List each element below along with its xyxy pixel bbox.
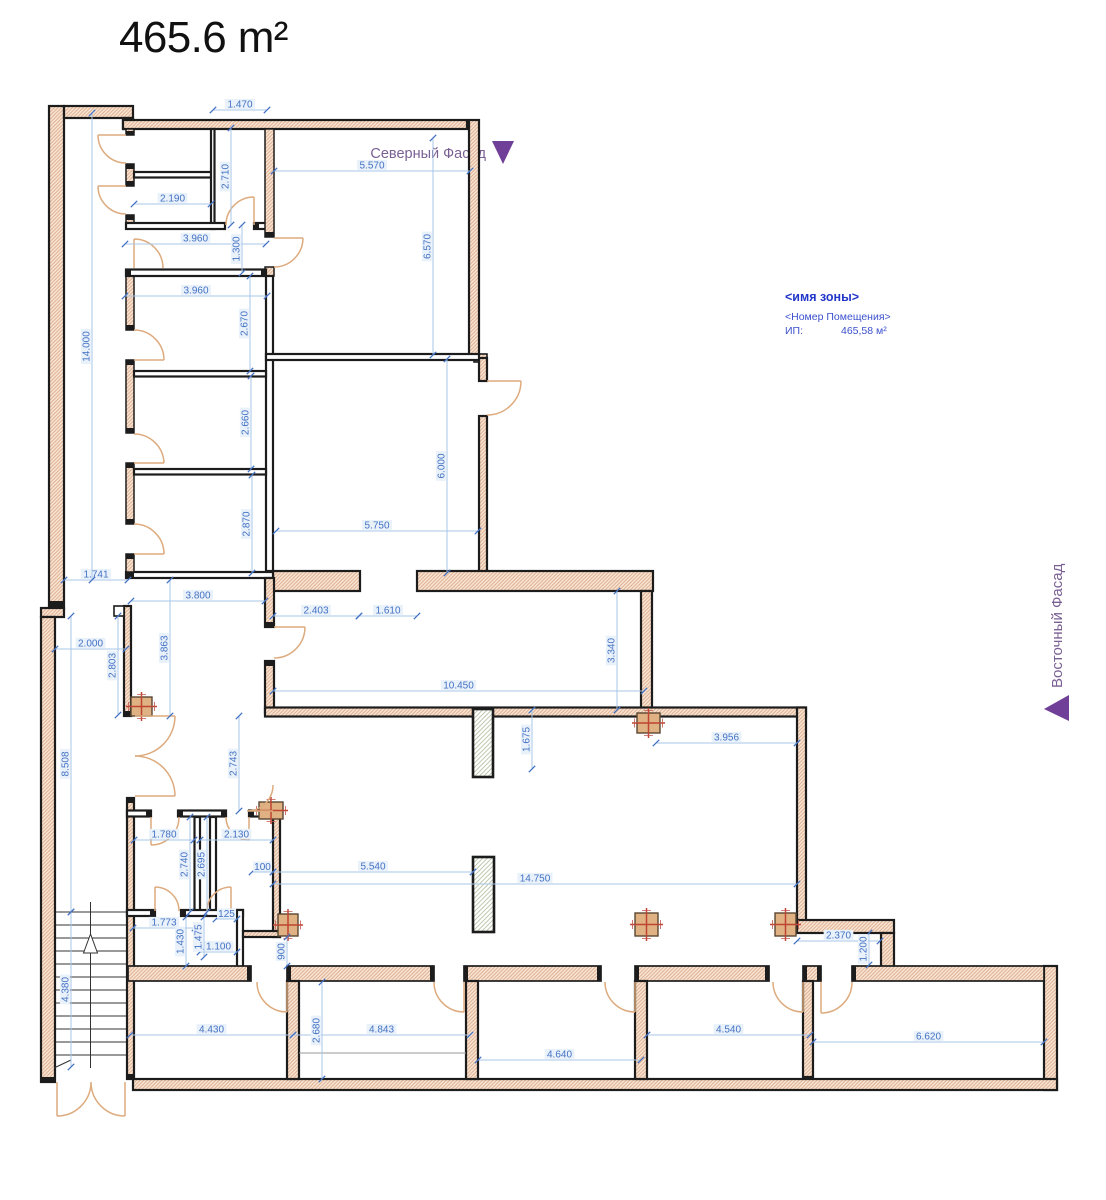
svg-text:6.570: 6.570 bbox=[423, 234, 434, 259]
svg-text:900: 900 bbox=[277, 943, 288, 960]
svg-text:2.870: 2.870 bbox=[242, 511, 253, 536]
svg-text:100: 100 bbox=[254, 862, 271, 873]
svg-text:465.6 m²: 465.6 m² bbox=[119, 13, 288, 62]
svg-text:1.780: 1.780 bbox=[151, 830, 176, 841]
svg-text:1.300: 1.300 bbox=[232, 236, 243, 261]
svg-text:2.403: 2.403 bbox=[303, 606, 328, 617]
svg-text:14.750: 14.750 bbox=[520, 874, 551, 885]
svg-text:5.570: 5.570 bbox=[359, 161, 384, 172]
svg-text:4.540: 4.540 bbox=[716, 1025, 741, 1036]
svg-text:3.960: 3.960 bbox=[183, 286, 208, 297]
svg-text:2.695: 2.695 bbox=[197, 852, 208, 877]
svg-text:1.430: 1.430 bbox=[176, 929, 187, 954]
svg-text:1.675: 1.675 bbox=[522, 727, 533, 752]
svg-text:5.540: 5.540 bbox=[360, 862, 385, 873]
svg-text:4.430: 4.430 bbox=[199, 1025, 224, 1036]
svg-text:4.640: 4.640 bbox=[547, 1050, 572, 1061]
svg-text:1.610: 1.610 bbox=[375, 606, 400, 617]
svg-text:2.130: 2.130 bbox=[224, 830, 249, 841]
svg-text:10.450: 10.450 bbox=[443, 681, 474, 692]
svg-text:Восточный Фасад: Восточный Фасад bbox=[1049, 563, 1066, 688]
svg-text:465,58 м²: 465,58 м² bbox=[841, 325, 887, 337]
svg-text:2.680: 2.680 bbox=[312, 1018, 323, 1043]
svg-text:2.743: 2.743 bbox=[229, 751, 240, 776]
svg-text:2.740: 2.740 bbox=[180, 852, 191, 877]
svg-text:4.843: 4.843 bbox=[369, 1025, 394, 1036]
svg-text:2.710: 2.710 bbox=[221, 164, 232, 189]
svg-text:4.380: 4.380 bbox=[61, 977, 72, 1002]
svg-text:14.000: 14.000 bbox=[82, 331, 93, 362]
svg-text:3.340: 3.340 bbox=[607, 638, 618, 663]
svg-text:1.475: 1.475 bbox=[194, 924, 205, 949]
svg-text:3.956: 3.956 bbox=[714, 733, 739, 744]
svg-text:6.620: 6.620 bbox=[916, 1032, 941, 1043]
svg-text:ИП:: ИП: bbox=[785, 325, 803, 337]
svg-text:3.863: 3.863 bbox=[160, 635, 171, 660]
svg-text:<Номер Помещения>: <Номер Помещения> bbox=[785, 311, 891, 323]
svg-text:1.773: 1.773 bbox=[151, 918, 176, 929]
svg-text:3.800: 3.800 bbox=[185, 591, 210, 602]
svg-text:<имя зоны>: <имя зоны> bbox=[785, 290, 859, 304]
svg-text:1.470: 1.470 bbox=[227, 100, 252, 111]
svg-text:3.960: 3.960 bbox=[183, 234, 208, 245]
svg-text:2.370: 2.370 bbox=[826, 931, 851, 942]
svg-text:2.000: 2.000 bbox=[78, 639, 103, 650]
svg-text:1.200: 1.200 bbox=[859, 936, 870, 961]
svg-text:2.670: 2.670 bbox=[240, 311, 251, 336]
svg-text:1.100: 1.100 bbox=[206, 942, 231, 953]
svg-text:125: 125 bbox=[218, 909, 235, 920]
svg-text:2.190: 2.190 bbox=[160, 194, 185, 205]
svg-text:8.508: 8.508 bbox=[61, 751, 72, 776]
svg-text:2.803: 2.803 bbox=[108, 653, 119, 678]
svg-text:1.741: 1.741 bbox=[83, 570, 108, 581]
svg-text:5.750: 5.750 bbox=[364, 521, 389, 532]
svg-text:6.000: 6.000 bbox=[437, 453, 448, 478]
svg-text:2.660: 2.660 bbox=[241, 410, 252, 435]
